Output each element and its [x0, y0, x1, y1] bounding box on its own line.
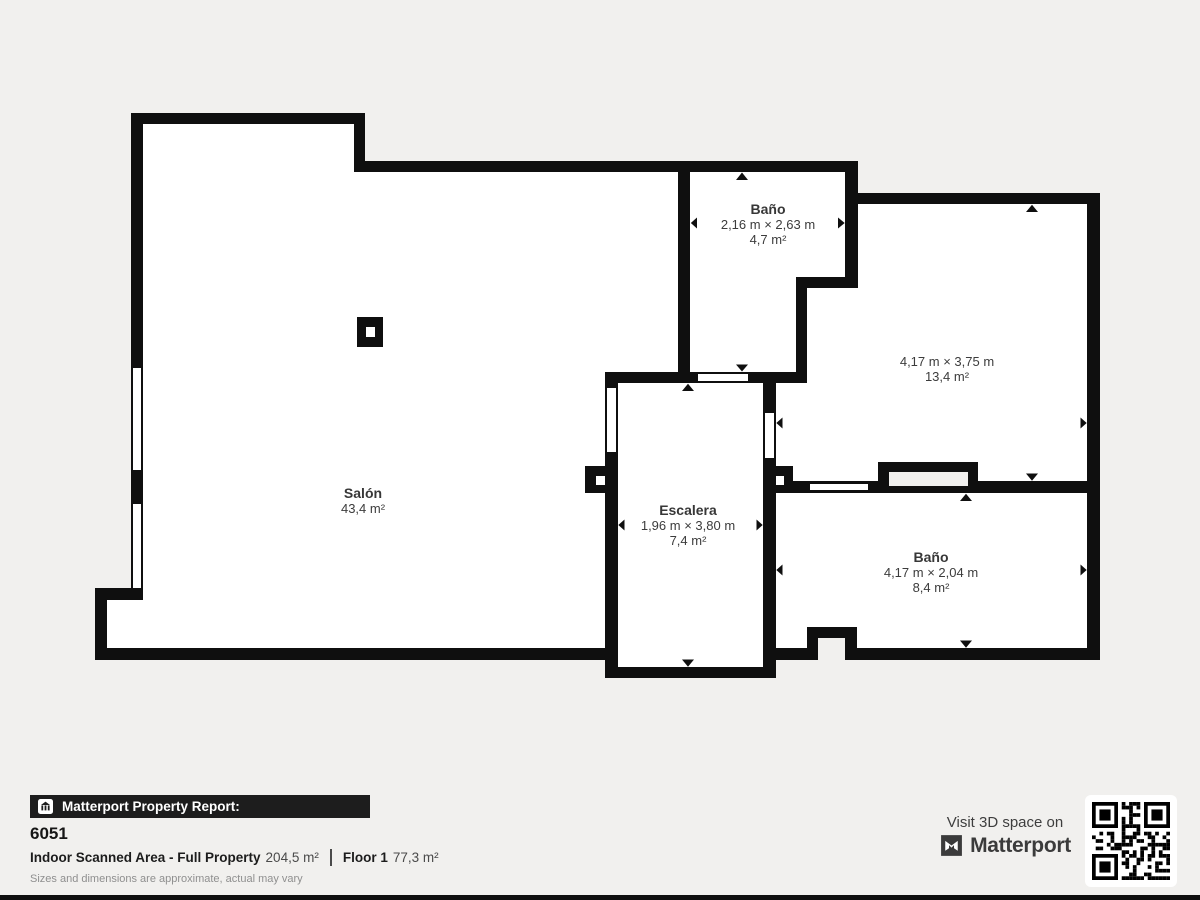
bottom-edge-bar — [0, 895, 1200, 900]
room-dimensions: 2,16 m × 2,63 m — [721, 217, 815, 232]
window-marker — [133, 368, 141, 470]
room-area-value: 43,4 m² — [341, 501, 385, 516]
door-opening — [810, 484, 868, 490]
stats-divider — [330, 849, 332, 866]
scanned-area-label: Indoor Scanned Area - Full Property — [30, 850, 261, 865]
brand-name: Matterport — [970, 834, 1071, 858]
scanned-area-value: 204,5 m² — [266, 850, 319, 865]
window-marker — [607, 388, 616, 452]
property-id: 6051 — [30, 824, 68, 844]
qr-code-svg — [1092, 802, 1170, 880]
room-label-bano-bottom: Baño 4,17 m × 2,04 m 8,4 m² — [884, 549, 978, 595]
area-stats: Indoor Scanned Area - Full Property 204,… — [30, 849, 439, 866]
matterport-m-icon — [939, 833, 964, 858]
room-label-salon: Salón 43,4 m² — [341, 485, 385, 516]
room-area-value: 7,4 m² — [641, 533, 735, 548]
room-name: Baño — [721, 201, 815, 217]
building-icon — [38, 799, 53, 814]
floor-value: 77,3 m² — [393, 850, 439, 865]
room-label-escalera: Escalera 1,96 m × 3,80 m 7,4 m² — [641, 502, 735, 548]
disclaimer-text: Sizes and dimensions are approximate, ac… — [30, 873, 303, 885]
room-name: Salón — [341, 485, 385, 501]
room-area-value: 4,7 m² — [721, 232, 815, 247]
room-area-value: 8,4 m² — [884, 580, 978, 595]
floor-plan: Salón 43,4 m² Baño 2,16 m × 2,63 m 4,7 m… — [0, 0, 1200, 760]
report-title: Matterport Property Report: — [62, 799, 240, 814]
room-dimensions: 4,17 m × 3,75 m — [900, 354, 994, 369]
door-opening — [698, 374, 748, 381]
room-name: Baño — [884, 549, 978, 565]
floor-label: Floor 1 — [343, 850, 388, 865]
property-report-page: Salón 43,4 m² Baño 2,16 m × 2,63 m 4,7 m… — [0, 0, 1200, 900]
visit-3d-label: Visit 3D space on — [935, 814, 1075, 831]
report-title-bar: Matterport Property Report: — [30, 795, 370, 818]
room-label-right-room: 4,17 m × 3,75 m 13,4 m² — [900, 354, 994, 384]
room-name: Escalera — [641, 502, 735, 518]
window-marker — [133, 504, 141, 588]
visit-3d-block: Visit 3D space on Matterport — [935, 814, 1075, 858]
room-area-value: 13,4 m² — [900, 369, 994, 384]
brand-lockup: Matterport — [935, 833, 1075, 858]
floor-plan-drawing — [0, 0, 1200, 760]
room-dimensions: 1,96 m × 3,80 m — [641, 518, 735, 533]
qr-code — [1085, 795, 1177, 887]
room-label-bano-top: Baño 2,16 m × 2,63 m 4,7 m² — [721, 201, 815, 247]
room-dimensions: 4,17 m × 2,04 m — [884, 565, 978, 580]
window-marker — [765, 413, 774, 458]
